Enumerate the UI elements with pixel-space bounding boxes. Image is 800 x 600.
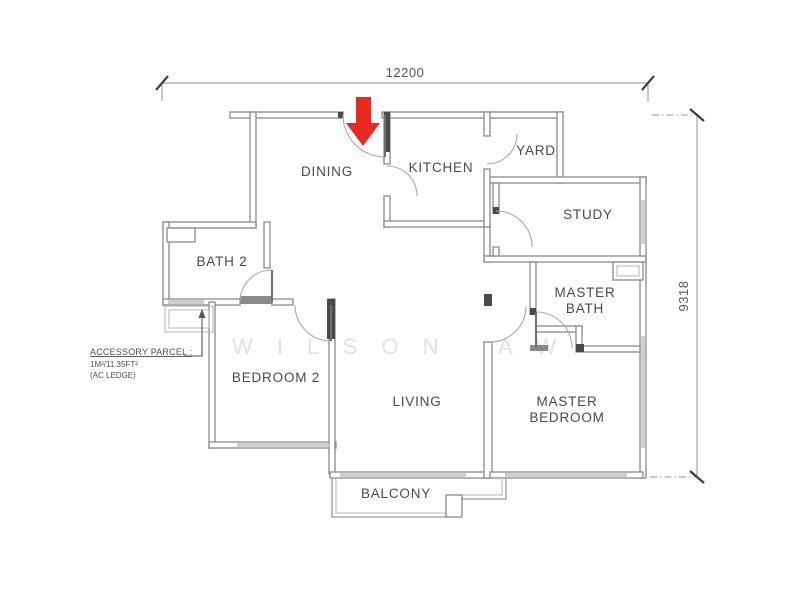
- room-label-yard: YARD: [516, 143, 556, 158]
- height-dimension-label: 9318: [676, 281, 691, 312]
- room-label-master-bedroom-line2: BEDROOM: [529, 410, 604, 425]
- room-label-bath2: BATH 2: [196, 254, 247, 269]
- room-label-study: STUDY: [563, 207, 613, 222]
- room-label-master-bath-line1: MASTER: [554, 285, 615, 300]
- room-label-bedroom2: BEDROOM 2: [232, 370, 320, 385]
- room-label-master-bedroom-line1: MASTER: [536, 394, 597, 409]
- entrance-arrow-icon: [346, 97, 380, 146]
- room-label-dining: DINING: [301, 164, 353, 179]
- accessory-parcel-callout: ACCESSORY PARCEL : 1M²/11.35FT² (AC LEDG…: [90, 309, 206, 380]
- room-label-living: LIVING: [392, 394, 441, 409]
- room-label-master-bath-line2: BATH: [566, 301, 604, 316]
- room-label-balcony: BALCONY: [361, 486, 431, 501]
- top-dimension: 12200: [156, 65, 654, 101]
- right-dimension: 9318: [650, 109, 704, 483]
- floor-plan-drawing: 12200 9318 W I L S O N A W: [0, 0, 800, 600]
- watermark-part1: W I L S O N: [232, 334, 448, 359]
- watermark: W I L S O N A W: [232, 334, 565, 359]
- width-dimension-label: 12200: [386, 65, 425, 80]
- floor-plan-page: 12200 9318 W I L S O N A W: [0, 0, 800, 600]
- room-label-kitchen: KITCHEN: [409, 160, 474, 175]
- accessory-parcel-area: 1M²/11.35FT²: [90, 360, 138, 369]
- ac-ledge: [165, 306, 213, 332]
- accessory-parcel-note: (AC LEDGE): [90, 371, 136, 380]
- accessory-parcel-title: ACCESSORY PARCEL :: [90, 347, 192, 357]
- bath2-fixture-box: [167, 228, 195, 242]
